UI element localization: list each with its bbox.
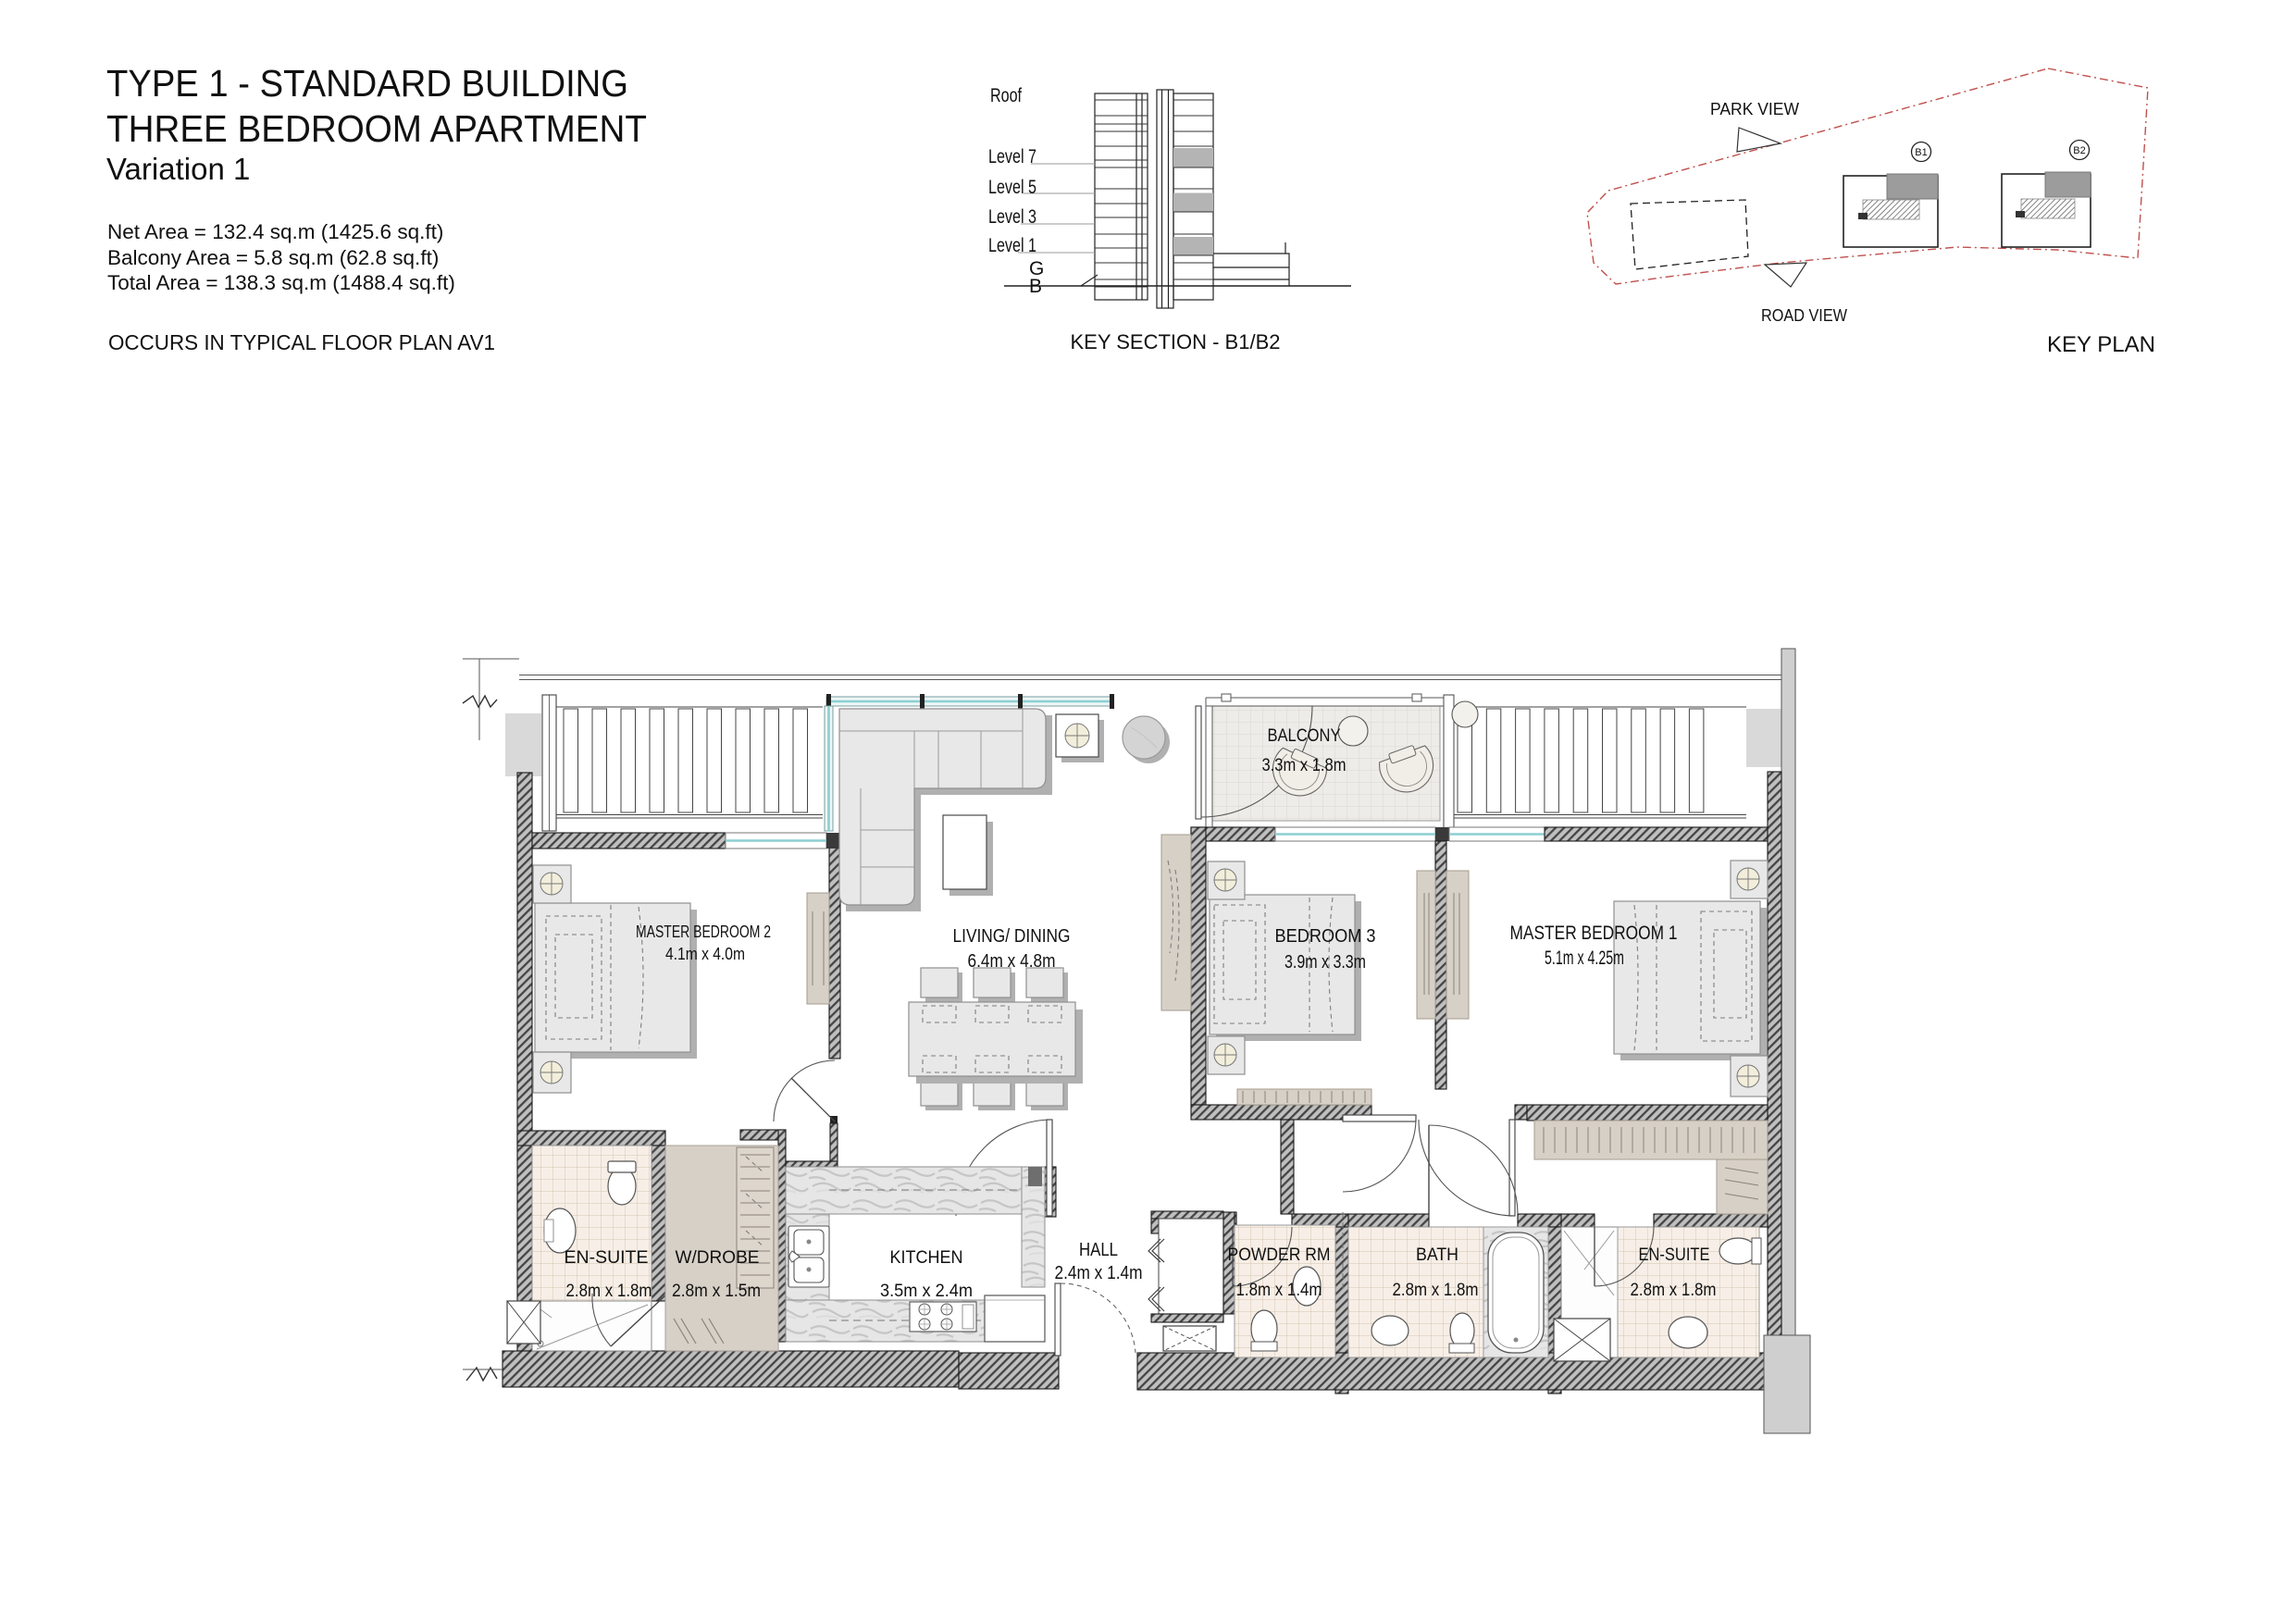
svg-text:Roof: Roof [990,85,1022,106]
svg-text:MASTER BEDROOM 1: MASTER BEDROOM 1 [1510,922,1678,944]
svg-text:B2: B2 [2073,145,2085,156]
svg-text:EN-SUITE: EN-SUITE [565,1248,649,1268]
svg-text:2.8m x 1.5m: 2.8m x 1.5m [672,1282,761,1301]
svg-text:TYPE 1 - STANDARD BUILDING: TYPE 1 - STANDARD BUILDING [106,62,628,105]
svg-text:POWDER RM: POWDER RM [1228,1245,1331,1265]
svg-text:KEY PLAN: KEY PLAN [2047,332,2155,357]
svg-text:6.4m x 4.8m: 6.4m x 4.8m [968,951,1056,972]
svg-text:B: B [1029,276,1042,297]
svg-text:EN-SUITE: EN-SUITE [1639,1245,1710,1265]
svg-text:2.8m x 1.8m: 2.8m x 1.8m [1393,1281,1479,1300]
svg-text:PARK VIEW: PARK VIEW [1710,100,1799,118]
svg-text:HALL: HALL [1079,1240,1118,1260]
svg-text:Level 1: Level 1 [988,235,1036,256]
svg-text:2.4m x 1.4m: 2.4m x 1.4m [1055,1263,1143,1283]
svg-text:ROAD VIEW: ROAD VIEW [1761,306,1847,325]
svg-text:THREE BEDROOM APARTMENT: THREE BEDROOM APARTMENT [106,107,647,150]
svg-text:5.1m x 4.25m: 5.1m x 4.25m [1545,948,1624,969]
svg-text:Level 3: Level 3 [988,206,1036,228]
svg-text:Level 5: Level 5 [988,177,1036,198]
svg-text:KEY SECTION - B1/B2: KEY SECTION - B1/B2 [1071,330,1281,353]
svg-text:KITCHEN: KITCHEN [890,1248,963,1268]
svg-text:BALCONY: BALCONY [1268,726,1341,746]
svg-text:2.8m x 1.8m: 2.8m x 1.8m [566,1282,652,1301]
svg-text:Net Area = 132.4 sq.m (1425.6: Net Area = 132.4 sq.m (1425.6 sq.ft) [107,220,443,243]
svg-text:OCCURS IN TYPICAL FLOOR PLAN: OCCURS IN TYPICAL FLOOR PLAN AV1 [108,330,495,354]
svg-text:3.3m x 1.8m: 3.3m x 1.8m [1262,756,1347,775]
svg-text:Total Area = 138.3 sq.m (1488: Total Area = 138.3 sq.m (1488.4 sq.ft) [107,271,455,294]
svg-text:3.9m x 3.3m: 3.9m x 3.3m [1285,952,1366,973]
svg-text:BATH: BATH [1416,1245,1458,1265]
svg-text:4.1m x 4.0m: 4.1m x 4.0m [665,945,745,963]
svg-text:3.5m x 2.4m: 3.5m x 2.4m [880,1282,973,1301]
svg-text:LIVING/ DINING: LIVING/ DINING [953,926,1071,947]
svg-text:Variation 1: Variation 1 [106,152,250,186]
svg-text:W/DROBE: W/DROBE [676,1248,760,1268]
svg-text:BEDROOM 3: BEDROOM 3 [1275,926,1376,947]
svg-text:Level 7: Level 7 [988,146,1036,167]
svg-text:1.8m x 1.4m: 1.8m x 1.4m [1236,1281,1322,1300]
svg-text:MASTER BEDROOM 2: MASTER BEDROOM 2 [636,923,771,941]
svg-text:B1: B1 [1915,147,1927,158]
svg-text:2.8m x 1.8m: 2.8m x 1.8m [1631,1281,1717,1300]
svg-text:Balcony Area = 5.8 sq.m (62.8: Balcony Area = 5.8 sq.m (62.8 sq.ft) [107,246,439,269]
